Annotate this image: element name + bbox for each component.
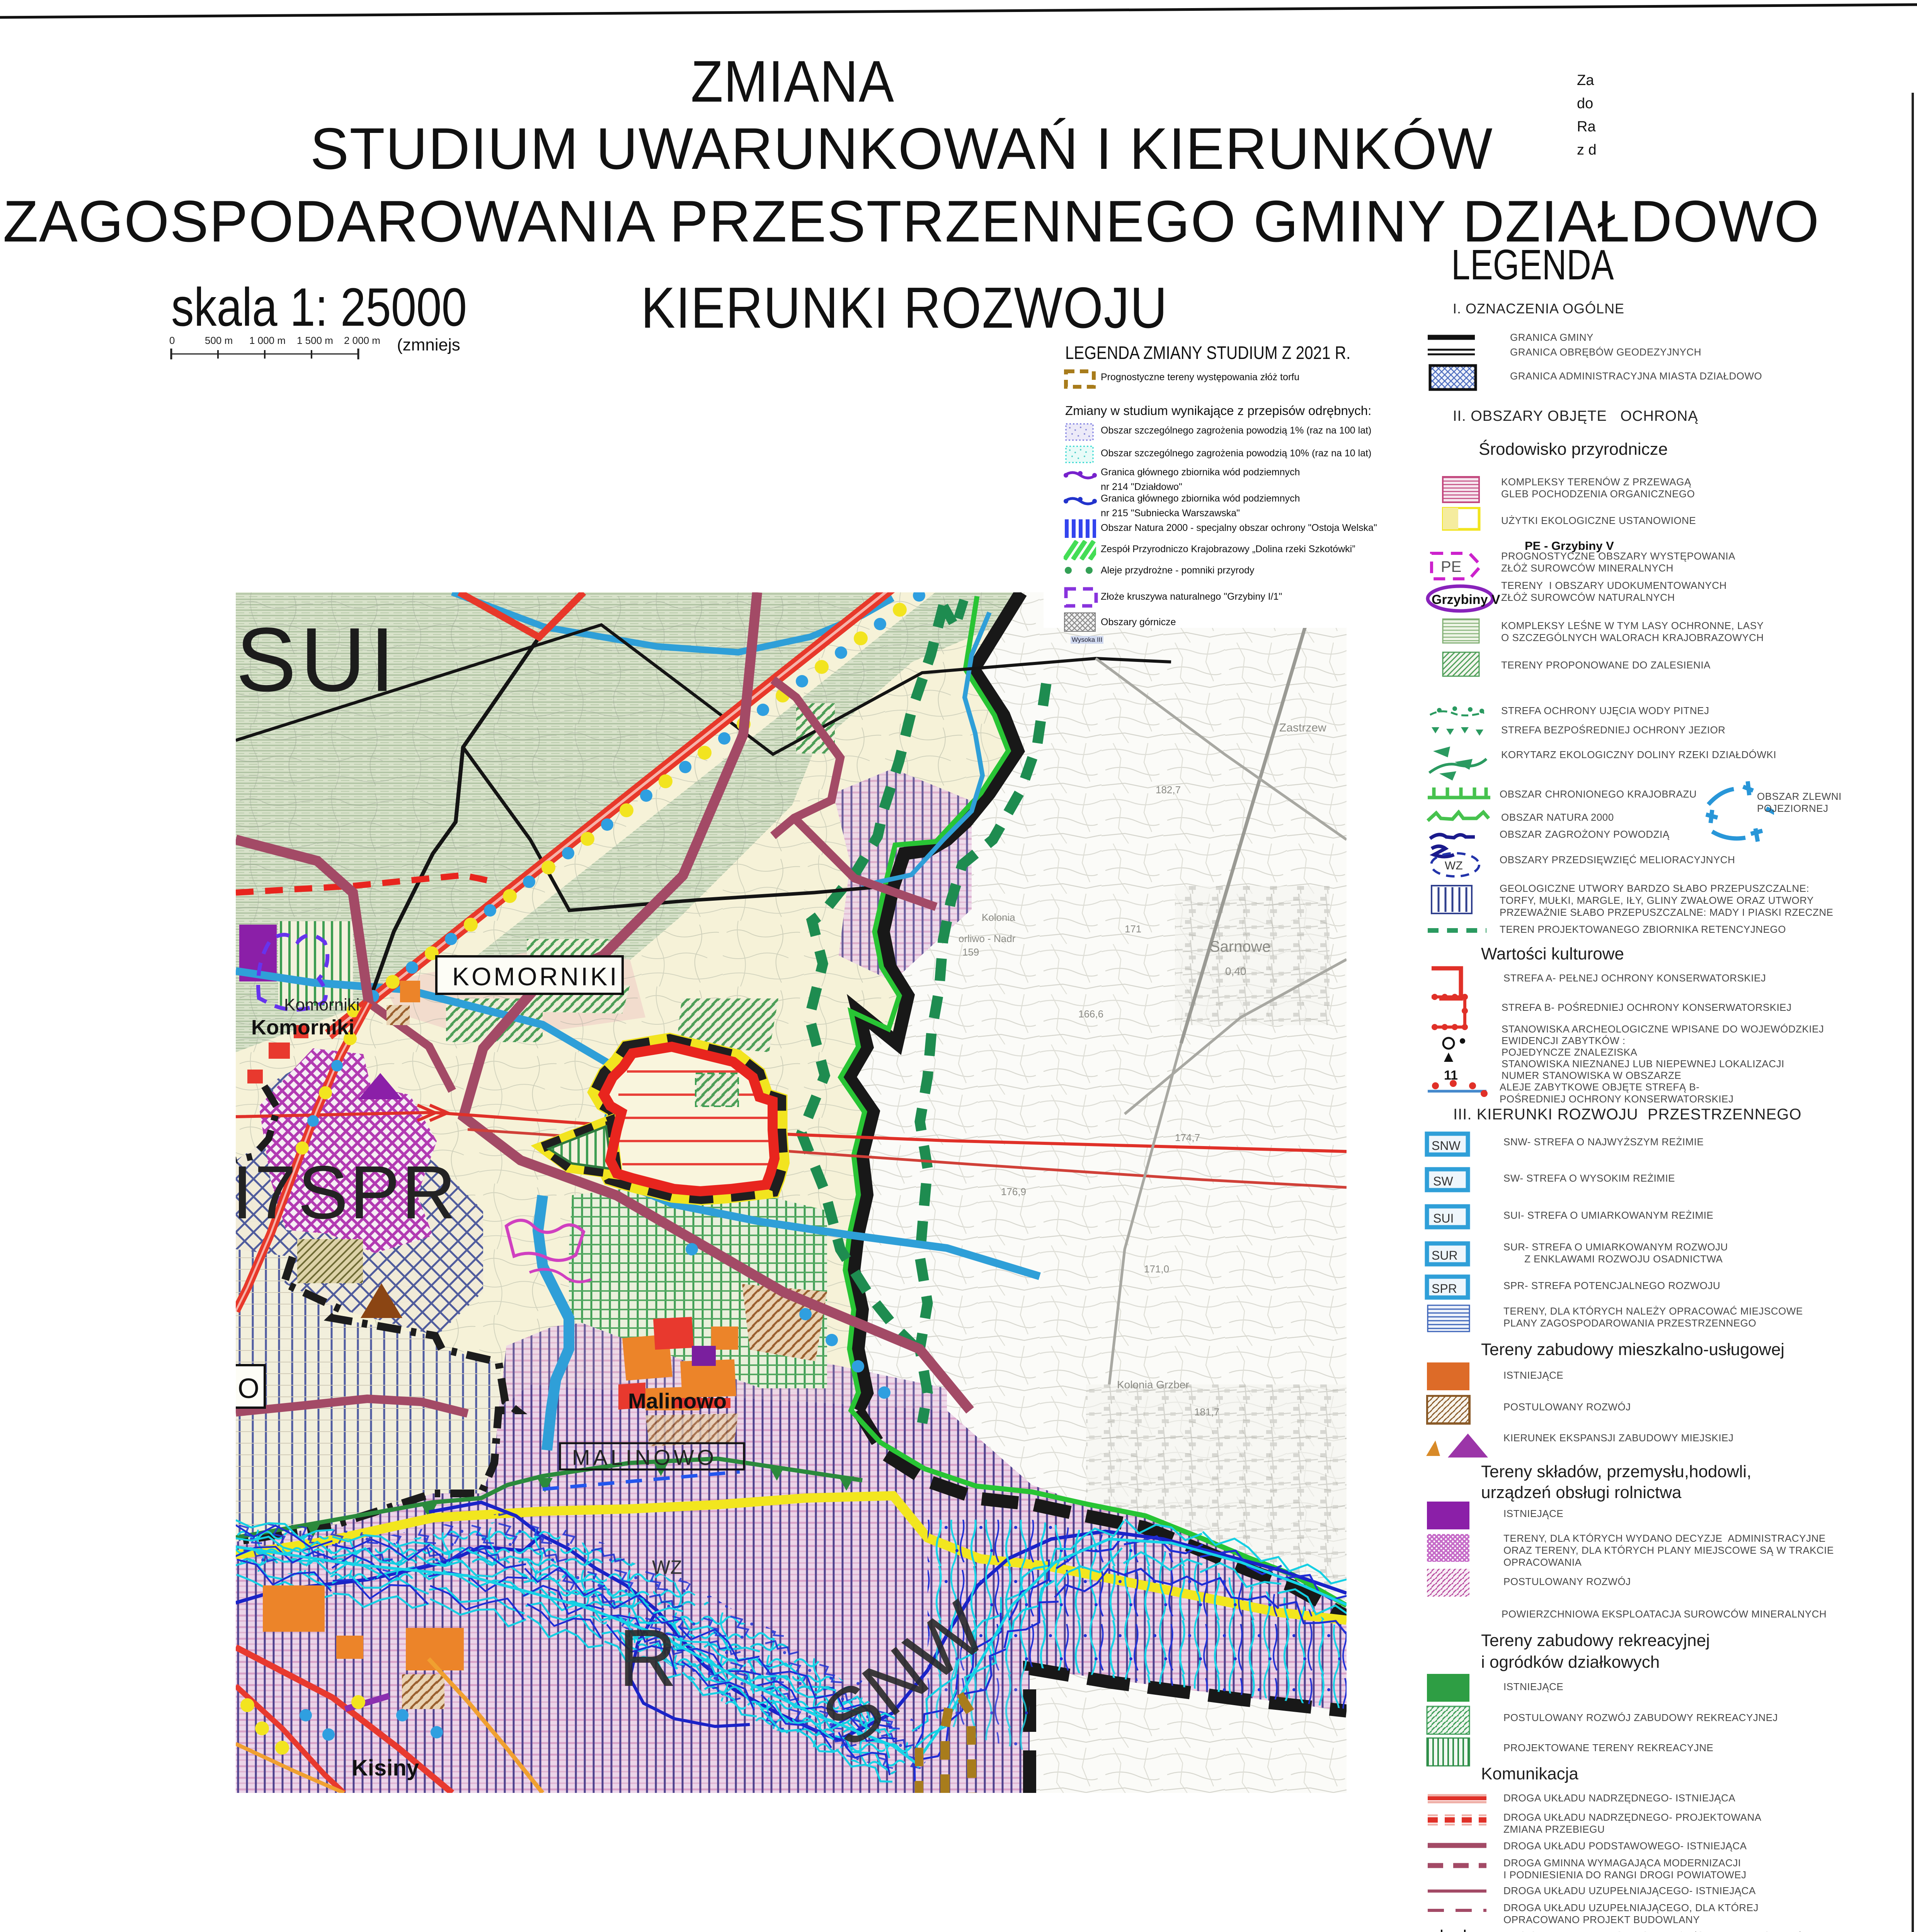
svg-text:176,9: 176,9 [1001, 1186, 1026, 1197]
svg-text:500 m: 500 m [205, 335, 233, 346]
svg-text:MALINOWO: MALINOWO [572, 1445, 717, 1469]
svg-text:Kolonia Grzber: Kolonia Grzber [1117, 1379, 1189, 1391]
svg-text:1 000 m: 1 000 m [249, 335, 286, 346]
svg-text:171,0: 171,0 [1144, 1263, 1169, 1275]
svg-text:WZ: WZ [652, 1556, 682, 1578]
svg-text:166,6: 166,6 [1078, 1008, 1103, 1020]
svg-text:orliwo - Nadr: orliwo - Nadr [958, 933, 1016, 944]
svg-text:KOMORNIKI: KOMORNIKI [452, 962, 619, 991]
svg-text:182,7: 182,7 [1156, 784, 1181, 796]
svg-text:SUR: SUR [1432, 1248, 1458, 1262]
svg-text:181,7: 181,7 [1194, 1406, 1219, 1418]
svg-text:171: 171 [1125, 923, 1141, 935]
svg-text:Sarnowe: Sarnowe [1210, 938, 1271, 955]
svg-text:2 000 m: 2 000 m [344, 335, 380, 346]
svg-text:Grzybiny V: Grzybiny V [1432, 592, 1500, 607]
svg-text:O: O [238, 1373, 259, 1404]
svg-text:Komorniki: Komorniki [251, 1016, 354, 1039]
svg-text:SNW: SNW [1432, 1139, 1461, 1153]
svg-text:Zastrzew: Zastrzew [1279, 721, 1326, 734]
svg-text:SUI: SUI [236, 609, 399, 710]
svg-text:159: 159 [962, 946, 979, 958]
svg-text:174,7: 174,7 [1175, 1132, 1200, 1143]
svg-text:Kisiny: Kisiny [352, 1755, 419, 1781]
svg-text:PE: PE [1441, 558, 1461, 575]
svg-text:Kolonia: Kolonia [982, 912, 1015, 923]
svg-text:SPR: SPR [1432, 1282, 1457, 1296]
svg-text:I7SPR: I7SPR [236, 1150, 458, 1235]
svg-text:Komorniki: Komorniki [284, 995, 360, 1014]
svg-text:0,40: 0,40 [1225, 965, 1246, 977]
svg-text:Malinowo: Malinowo [628, 1389, 727, 1413]
svg-text:WZ: WZ [1445, 859, 1463, 872]
svg-text:1 500 m: 1 500 m [297, 335, 333, 346]
svg-text:SUI: SUI [1433, 1211, 1454, 1225]
svg-text:R: R [618, 1612, 677, 1703]
svg-text:SW: SW [1433, 1174, 1453, 1188]
svg-text:0: 0 [169, 335, 175, 346]
